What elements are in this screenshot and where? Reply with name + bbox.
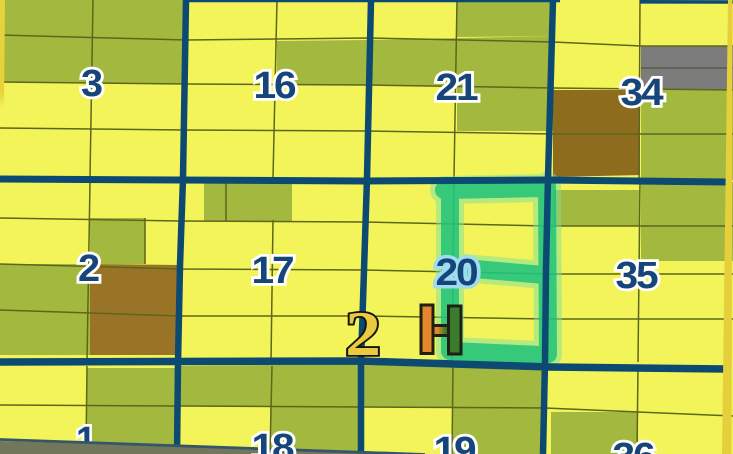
svg-text:2: 2 (78, 248, 99, 290)
svg-text:20: 20 (436, 252, 478, 294)
svg-text:17: 17 (252, 250, 294, 292)
svg-text:34: 34 (621, 72, 664, 114)
svg-text:21: 21 (436, 67, 479, 109)
svg-text:2: 2 (345, 298, 381, 370)
svg-text:19: 19 (434, 430, 476, 454)
svg-text:36: 36 (613, 436, 655, 454)
svg-text:3: 3 (81, 63, 102, 105)
svg-text:18: 18 (252, 427, 294, 454)
svg-text:35: 35 (616, 255, 659, 297)
svg-text:16: 16 (254, 65, 296, 107)
